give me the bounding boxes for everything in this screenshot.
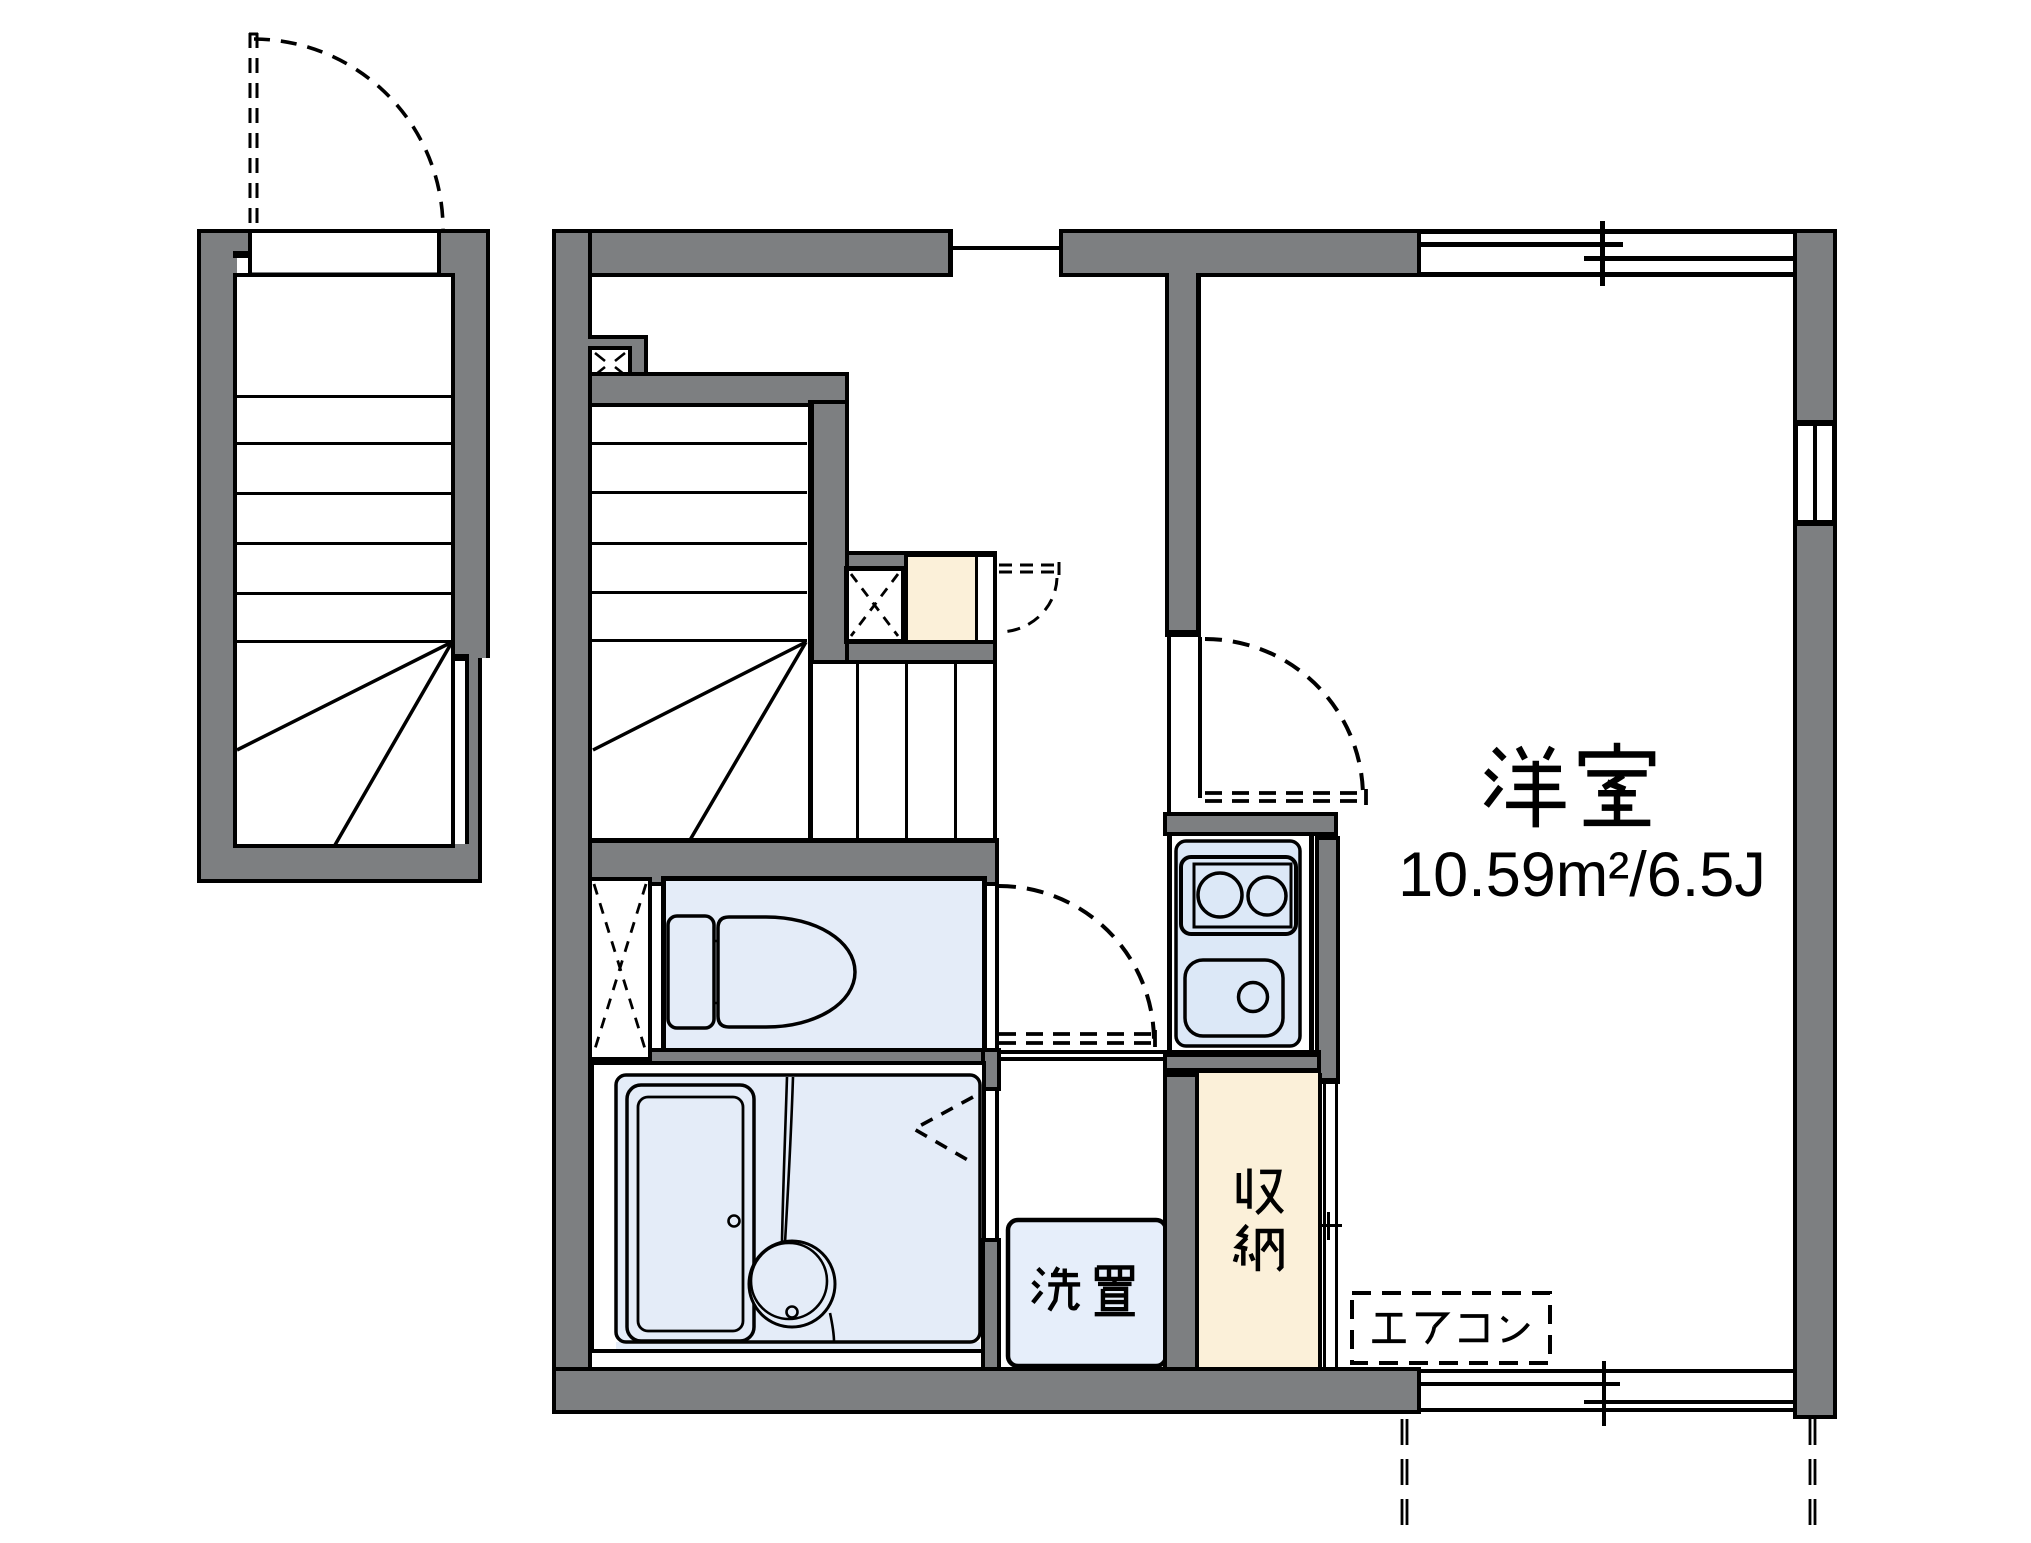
svg-text:10.59m²/6.5J: 10.59m²/6.5J [1398,840,1766,910]
